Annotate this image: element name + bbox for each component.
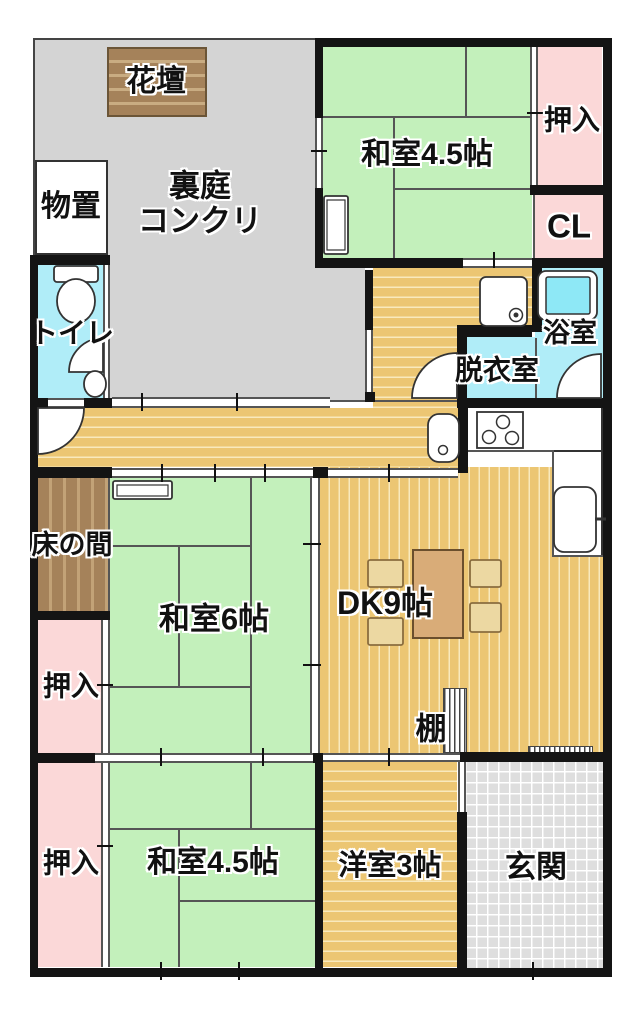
window-hallway-north [112,397,330,408]
kitchen-counter [466,406,603,452]
dimension-tick [532,962,534,980]
partition-line [466,450,552,452]
label-dk: DK9帖 [337,586,433,622]
partition-line [330,400,458,402]
wall [532,268,542,332]
label-tokonoma: 床の間 [32,530,113,560]
dimension-tick [527,112,543,114]
dimension-tick [97,845,113,847]
partition-line [465,47,467,116]
wall [313,467,328,478]
label-storage: 物置 [41,190,101,224]
dimension-tick [303,664,321,666]
sliding-door-oshiire-top [530,47,538,185]
dimension-tick [493,252,495,268]
label-cl: CL [547,209,591,246]
shelf-unit [443,688,467,753]
label-japanese-room-6: 和室6帖 [159,603,269,638]
sliding-door-room6-dk [310,478,320,753]
hallway [38,408,460,467]
sliding-door-rooms-south [95,753,315,763]
label-dressing-room: 脱衣室 [455,354,539,385]
partition-line [178,900,317,902]
wall [30,255,110,265]
wall [457,398,603,408]
dimension-tick [388,464,390,482]
dimension-tick [238,962,240,980]
label-flower-bed: 花壇 [126,65,186,99]
dimension-tick [160,748,162,766]
sliding-door-laundry [463,258,532,268]
dimension-tick [236,393,238,411]
label-backyard: 裏庭 コンクリ [138,169,262,238]
wall [457,325,532,337]
kitchen-counter-side [552,450,603,557]
wall [365,270,373,330]
wall [315,38,323,118]
partition-line [110,545,250,547]
label-entrance: 玄関 [505,851,567,886]
partition-line [393,188,532,190]
sliding-door-oshiire-mid [101,620,110,753]
partition-line [323,116,532,118]
wall [315,762,323,968]
wall [30,398,48,408]
wall [530,185,603,195]
dimension-tick [141,393,143,411]
kitchen-corridor [373,268,457,408]
dimension-tick [214,464,216,482]
wall [315,258,463,268]
label-bathroom: 浴室 [543,318,597,348]
partition-line [110,828,317,830]
dimension-tick [388,748,390,766]
partition-line [533,195,535,258]
dimension-tick [303,543,321,545]
wall [30,968,612,977]
dimension-tick [264,464,266,482]
wall [84,398,112,408]
partition-line [110,686,250,688]
wall [458,398,468,473]
wall [365,392,375,402]
sliding-door-dk-hall [328,468,458,478]
label-western-room-3: 洋室3帖 [338,850,441,882]
partition-line [552,450,554,557]
wall [603,38,612,977]
backyard-area-east [322,268,365,400]
wall [30,611,110,620]
wall [460,752,603,762]
label-toilet: トイレ [30,317,114,348]
wall [30,467,112,478]
wall [30,753,95,763]
dimension-tick [262,748,264,766]
wall [315,38,612,47]
opening-western-entrance [458,762,466,812]
toilet-door-gap [48,398,84,408]
label-japanese-room-45-top: 和室4.5帖 [361,138,493,172]
wall [532,258,612,268]
label-oshiire-top: 押入 [544,104,600,135]
sliding-door-backyard [365,330,373,392]
wall [315,188,323,258]
dimension-tick [160,962,162,980]
dimension-tick [311,150,327,152]
window-west-top-room [315,118,323,188]
label-shelf: 棚 [416,713,447,748]
label-oshiire-middle: 押入 [43,670,99,701]
sliding-door-oshiire-bottom [101,762,110,967]
label-japanese-room-45-bottom: 和室4.5帖 [147,846,279,880]
sliding-door-room6-hall [112,468,313,478]
wall [457,812,467,968]
dimension-tick [97,684,113,686]
label-oshiire-bottom: 押入 [43,847,99,878]
partition-line [250,762,252,828]
partition-line [552,555,603,557]
dimension-tick [161,464,163,482]
floor-plan: 花壇裏庭 コンクリ物置トイレ和室4.5帖押入CL浴室脱衣室床の間和室6帖DK9帖… [0,0,634,1024]
sliding-door-dk-western [323,753,460,762]
